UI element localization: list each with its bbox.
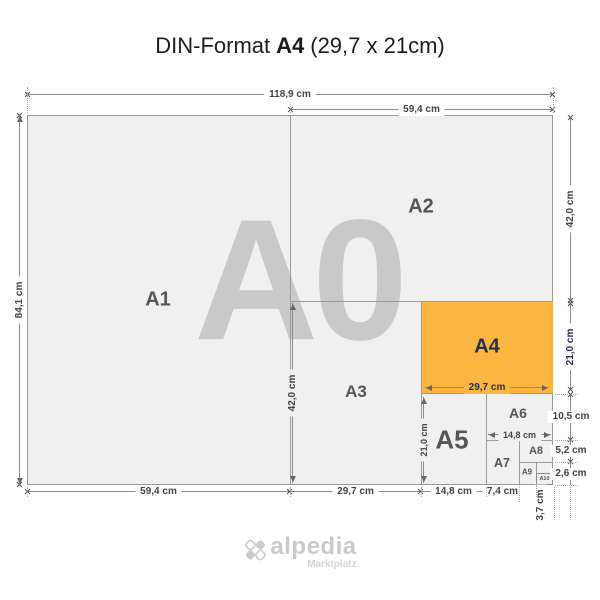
dim-a3-width-label: 29,7 cm <box>332 486 379 498</box>
arrow-right-icon <box>542 385 548 391</box>
dim-a2-height: 42,0 cm <box>564 117 578 301</box>
dim-a2-height-label: 42,0 cm <box>565 186 577 233</box>
extension-line <box>290 487 291 497</box>
extension-line <box>486 487 487 497</box>
arrow-down-icon <box>17 478 23 484</box>
a10-label: A10 <box>539 476 549 482</box>
dim-a3-height-label: 42,0 cm <box>287 370 299 417</box>
a7-label: A7 <box>494 456 510 470</box>
a2-label: A2 <box>408 196 434 219</box>
dim-a7-width: 7,4 cm <box>486 485 519 499</box>
extension-line <box>555 394 578 395</box>
extension-line <box>27 87 28 113</box>
dim-a3-width: 29,7 cm <box>290 485 421 499</box>
title-prefix: DIN-Format <box>155 33 270 59</box>
dim-a0-width: 118,9 cm <box>27 88 553 102</box>
dim-a0-width-label: 118,9 cm <box>264 89 316 101</box>
arrow-right-icon <box>544 432 550 438</box>
dim-a7-width-label: 7,4 cm <box>482 486 523 498</box>
logo-name: alpedia <box>270 535 356 559</box>
extension-line <box>554 487 555 520</box>
logo-tagline: Marktplatz <box>307 559 356 570</box>
a4-label: A4 <box>474 336 500 359</box>
arrow-left-icon <box>489 432 495 438</box>
dim-a2-width: 59,4 cm <box>290 103 553 117</box>
din-format-diagram: DIN-Format A4 (29,7 x 21cm) A0 A10 A1 A2… <box>0 0 600 600</box>
divider-a5-a6 <box>486 393 487 485</box>
dim-a10-height-label: 2,6 cm <box>550 468 591 480</box>
extension-line <box>555 485 578 486</box>
extension-line <box>290 102 291 113</box>
dim-a10-height: 2,6 cm <box>564 462 578 485</box>
dim-a5-width-label: 14,8 cm <box>430 486 477 498</box>
dim-a6-width: 14,8 cm <box>488 428 551 442</box>
dim-a2-width-label: 59,4 cm <box>398 104 445 116</box>
dim-a1-width-label: 59,4 cm <box>135 486 182 498</box>
extension-line <box>570 487 571 520</box>
title-format: A4 <box>276 33 304 59</box>
title-size: (29,7 x 21cm) <box>310 33 445 59</box>
a3-label: A3 <box>345 382 367 402</box>
a6-label: A6 <box>509 405 527 421</box>
a8-label: A8 <box>529 445 543 457</box>
dim-a4-width-label: 29,7 cm <box>464 382 511 394</box>
arrow-up-icon <box>290 304 296 310</box>
arrow-left-icon <box>426 385 432 391</box>
dim-a5-height-label: 21,0 cm <box>418 418 430 461</box>
extension-line <box>555 462 578 463</box>
arrow-down-icon <box>421 476 427 482</box>
dim-a4-width: 29,7 cm <box>425 381 549 395</box>
extension-line <box>421 487 422 497</box>
a9-label: A9 <box>522 468 532 477</box>
dim-a6-height: 10,5 cm <box>564 394 578 440</box>
logo-text: alpedia Marktplatz <box>270 535 356 570</box>
arrow-down-icon <box>290 476 296 482</box>
dim-a4-height: 21,0 cm <box>564 303 578 390</box>
dim-a0-height: 84,1 cm <box>13 115 27 485</box>
logo-clover-icon <box>243 538 267 562</box>
logo: alpedia Marktplatz <box>243 535 356 570</box>
extension-line <box>519 485 520 502</box>
dim-a4-height-label: 21,0 cm <box>565 323 577 370</box>
arrow-up-icon <box>421 398 427 404</box>
extension-line <box>27 487 28 497</box>
dim-a0-height-label: 84,1 cm <box>14 277 26 324</box>
dim-tick-icon <box>567 300 574 307</box>
extension-line <box>553 87 554 113</box>
dim-a3-height: 42,0 cm <box>286 303 300 483</box>
extension-line <box>555 440 578 441</box>
dim-a5-height: 21,0 cm <box>417 397 431 483</box>
dim-tick-icon <box>567 114 574 121</box>
a5-label: A5 <box>435 425 468 456</box>
dim-a8-height-label: 5,2 cm <box>550 445 591 457</box>
page-title: DIN-Format A4 (29,7 x 21cm) <box>0 33 600 59</box>
dim-a1-width: 59,4 cm <box>27 485 290 499</box>
dim-a6-width-label: 14,8 cm <box>498 429 541 441</box>
arrow-up-icon <box>17 116 23 122</box>
a1-label: A1 <box>145 289 171 312</box>
dim-a8-height: 5,2 cm <box>564 440 578 462</box>
dim-a5-width: 14,8 cm <box>421 485 486 499</box>
extension-line <box>536 485 537 497</box>
dim-a6-height-label: 10,5 cm <box>548 411 595 423</box>
